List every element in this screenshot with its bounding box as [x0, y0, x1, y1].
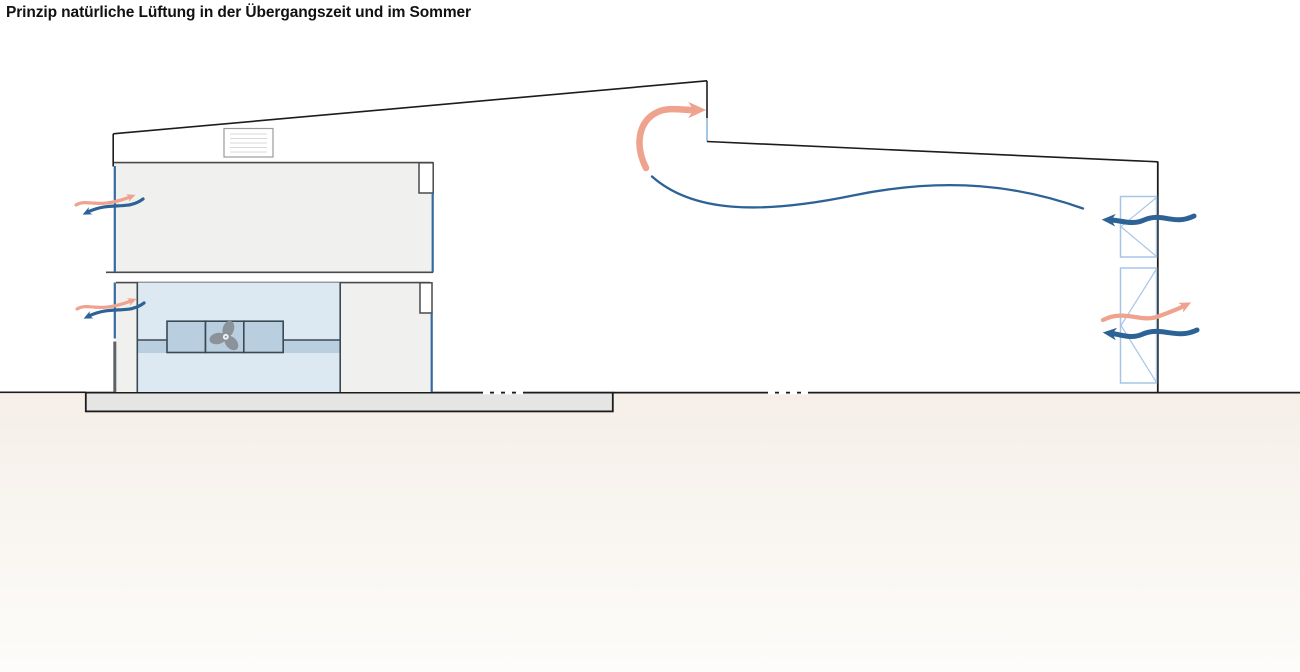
foundation-slab — [86, 393, 613, 412]
vent-window-lower — [1121, 268, 1157, 383]
upper-room-fill — [114, 163, 433, 272]
diagram-title: Prinzip natürliche Lüftung in der Überga… — [6, 4, 471, 22]
upper-duct-box — [419, 163, 433, 193]
ground-soil — [0, 394, 1300, 672]
diagram-canvas: Prinzip natürliche Lüftung in der Überga… — [0, 0, 1300, 672]
exhaust-tower — [1121, 162, 1158, 393]
upper-floor-room — [106, 163, 433, 273]
lower-roof-line — [707, 142, 1158, 162]
section-drawing — [0, 0, 1300, 672]
ground — [0, 391, 1300, 672]
clerestory-exhaust-arrow — [640, 109, 694, 168]
skylight-vent-icon — [224, 129, 273, 158]
ventilation-unit — [167, 319, 283, 353]
lower-duct-box — [420, 283, 432, 313]
lower-floor-room — [115, 283, 432, 393]
cross-ventilation-path — [652, 177, 1083, 209]
left-building — [106, 81, 1158, 392]
vent-window-upper — [1121, 197, 1157, 258]
upper-roof-line — [113, 81, 707, 134]
pool-hall — [137, 283, 340, 393]
